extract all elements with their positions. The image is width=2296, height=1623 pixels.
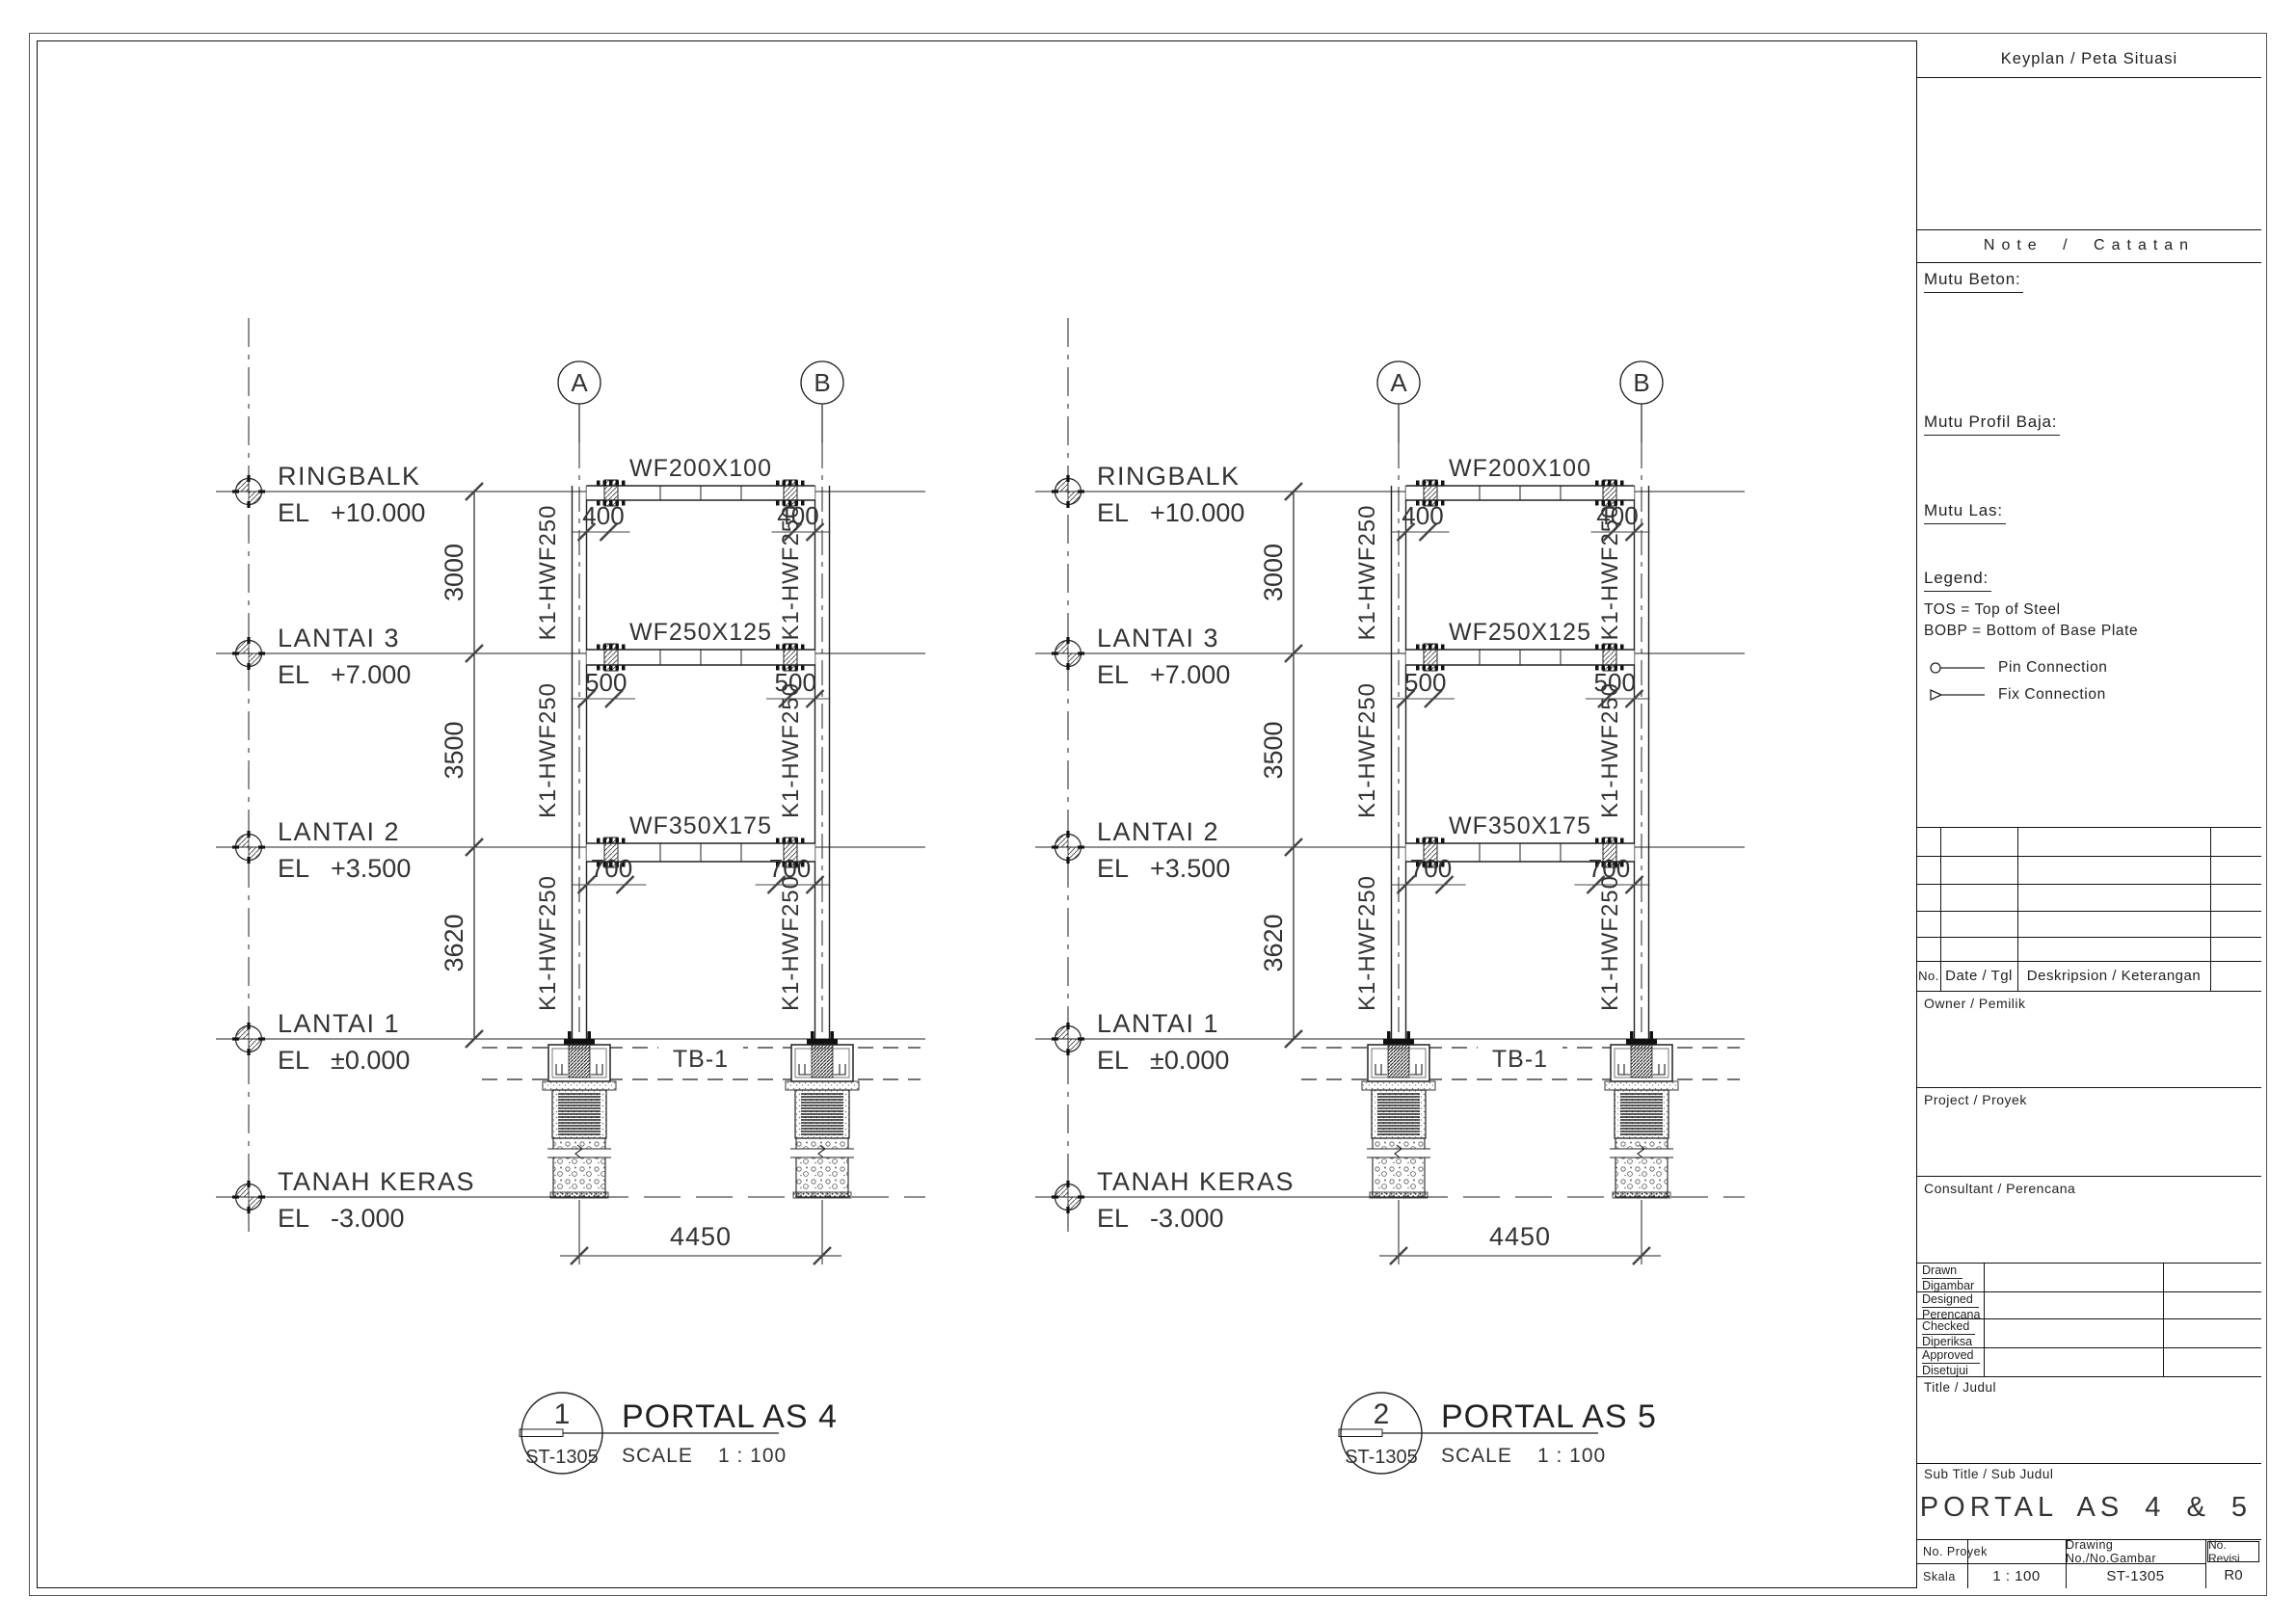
portals-0-column_label: K1-HWF250 [778,682,804,818]
datum-symbol [232,831,265,864]
portals-1-bubble-ref: ST-1305 [1345,1447,1418,1468]
portals-1-beams-0-end_dim: 400 [1402,501,1443,530]
portals-1-column_label: K1-HWF250 [1354,682,1380,818]
owner-section: Owner / Pemilik [1917,991,2261,1088]
legend-fix-label: Fix Connection [1998,686,2106,704]
portals-1-levels-0-name: RINGBALK [1097,462,1241,491]
datum-symbol [232,637,265,670]
portals-1-grid_labels-0: A [1390,368,1407,397]
footer-strip: No. Proyek Skala 1 : 100 Drawing No./No.… [1917,1539,2261,1588]
signoff-checked-id: Diperiksa [1922,1335,1972,1348]
portals-1-tie_beam_label: TB-1 [1492,1046,1548,1073]
consultant-label: Consultant / Perencana [1924,1181,2075,1196]
revision-col-desc: Deskripsion / Keterangan [2017,961,2210,991]
portals-0-levels-4-prefix: EL [278,1204,309,1233]
subtitle-value: PORTAL AS 4 & 5 [1920,1492,2252,1524]
portals-0-story_dims-1: 3500 [440,721,468,779]
portals-0-levels-4-name: TANAH KERAS [278,1167,475,1196]
skala-label: Skala [1923,1570,1956,1583]
mutu-beton-label: Mutu Beton: [1924,270,2023,293]
portals-0-beams-1-label: WF250X125 [629,619,772,646]
foundation [1362,1031,1435,1198]
portals-0-column_label: K1-HWF250 [778,504,804,640]
portals-0-levels-3-name: LANTAI 1 [278,1009,400,1038]
portals-1-levels-4-name: TANAH KERAS [1097,1167,1295,1196]
project-label: Project / Proyek [1924,1092,2027,1107]
portals-0-tie_beam_label: TB-1 [673,1046,729,1073]
portals-0-beams-1-end_dim: 500 [585,668,627,697]
legend-pin-label: Pin Connection [1998,659,2108,677]
portals-0-grid_labels-0: A [571,368,588,397]
portals-1-levels-2-prefix: EL [1097,854,1129,883]
mutu-las-label: Mutu Las: [1924,501,2006,524]
portals-1-levels-3-name: LANTAI 1 [1097,1009,1219,1038]
portals-0-story_dims-2: 3620 [440,914,468,971]
signoff-checked-en: Checked [1922,1319,1975,1335]
keyplan-header: Keyplan / Peta Situasi [1917,40,2261,78]
portals-1-grid_labels-1: B [1633,368,1649,397]
datum-symbol [1052,1023,1084,1055]
subtitle-label: Sub Title / Sub Judul [1924,1467,2053,1481]
keyplan-header-label: Keyplan / Peta Situasi [1917,40,2261,77]
portals-0-column_label: K1-HWF250 [535,504,561,640]
portals-1-levels-1-name: LANTAI 3 [1097,624,1219,652]
portals-1-column_label: K1-HWF250 [1354,875,1380,1011]
portals-0-levels-4-value: -3.000 [331,1204,405,1233]
portals-0-bubble-ref: ST-1305 [525,1447,599,1468]
portals-1-story_dims-0: 3000 [1259,544,1288,601]
portals-1-levels-0-value: +10.000 [1150,498,1244,527]
foundation [543,1031,616,1198]
portals-0-levels-1-name: LANTAI 3 [278,624,400,652]
portals-0-column_label: K1-HWF250 [778,875,804,1011]
portals-1-beams-1-end_dim: 500 [1404,668,1446,697]
title-label: Title / Judul [1924,1380,1996,1395]
portals-0-beams-0-end_dim: 400 [582,501,624,530]
portals-1-bubble-number: 2 [1374,1398,1390,1430]
drawing-no-label: Drawing No./No.Gambar [2066,1539,2205,1563]
drawing-no-value: ST-1305 [2066,1563,2205,1588]
portals-0-column_label: K1-HWF250 [535,875,561,1011]
portals-1-story_dims-1: 3500 [1259,721,1288,779]
portals-1-bubble-scale_label: SCALE [1441,1445,1512,1467]
portals-1-column_label: K1-HWF250 [1597,504,1623,640]
portals-1-span_dim: 4450 [1489,1222,1551,1251]
revision-col-date: Date / Tgl [1940,961,2017,991]
portals-0-levels-1-prefix: EL [278,660,309,689]
title-section: Title / Judul [1917,1376,2261,1464]
revisi-cell: No. Revisi R0 [2205,1539,2261,1588]
portals-1-levels-1-value: +7.000 [1150,660,1230,689]
portals-1-column_label: K1-HWF250 [1597,682,1623,818]
portals-1-column_label: K1-HWF250 [1354,504,1380,640]
revisi-value: R0 [2207,1564,2259,1585]
portals-0-levels-3-value: ±0.000 [331,1046,410,1075]
note-header: Note / Catatan [1917,229,2261,263]
portals-1-beams-1-label: WF250X125 [1449,619,1591,646]
portals-0-levels-1-value: +7.000 [331,660,411,689]
portals-0-grid_labels-1: B [814,368,830,397]
signoff-drawn-id: Digambar [1922,1279,1974,1292]
foundation [786,1031,859,1198]
portals-0-column_label: K1-HWF250 [535,682,561,818]
revision-col-no: No. [1917,961,1940,991]
legend-bobp-line: BOBP = Bottom of Base Plate [1924,623,2138,640]
portals-0-bubble-title: PORTAL AS 4 [622,1398,838,1435]
portals-0-story_dims-0: 3000 [440,544,468,601]
portals-1-levels-3-prefix: EL [1097,1046,1129,1075]
no-proyek-label: No. Proyek [1923,1545,1988,1558]
portals-1-levels-2-name: LANTAI 2 [1097,817,1219,846]
signoff-approved-en: Approved [1922,1348,1980,1364]
signoff-approved-id: Disetujui [1922,1364,1968,1377]
portals-1-column_label: K1-HWF250 [1597,875,1623,1011]
portals-0-levels-0-prefix: EL [278,498,309,527]
portals-1-levels-4-prefix: EL [1097,1204,1129,1233]
portals-0-beams-0-label: WF200X100 [629,455,772,482]
revisi-label: No. Revisi [2207,1541,2259,1562]
portals-0-levels-0-name: RINGBALK [278,462,421,491]
datum-symbol [232,1181,265,1213]
portals-0-levels-3-prefix: EL [278,1046,309,1075]
keyplan-box [1917,77,2261,230]
portals-0-span_dim: 4450 [670,1222,732,1251]
portals-1-levels-3-value: ±0.000 [1150,1046,1229,1075]
consultant-section: Consultant / Perencana [1917,1176,2261,1264]
title-block: Keyplan / Peta Situasi Note / Catatan Mu… [1916,40,2261,1588]
datum-symbol [232,475,265,508]
revision-table: No. Date / Tgl Deskripsion / Keterangan [1917,827,2261,992]
portals-1-levels-0-prefix: EL [1097,498,1129,527]
owner-label: Owner / Pemilik [1924,996,2026,1011]
portals-1-story_dims-2: 3620 [1259,914,1288,971]
portals-1-bubble-title: PORTAL AS 5 [1441,1398,1657,1435]
portals-0-bubble-scale_label: SCALE [622,1445,693,1467]
datum-symbol [1052,831,1084,864]
fix-connection-icon [1929,688,1989,702]
foundation [1605,1031,1678,1198]
portals-0-bubble-scale_value: 1 : 100 [718,1445,787,1467]
portal-frame-1: ABWF200X100400400WF250X125500500WF350X17… [216,318,925,1474]
skala-value: 1 : 100 [1967,1563,2066,1588]
portals-0-beams-2-label: WF350X175 [629,812,772,839]
portals-1-levels-2-value: +3.500 [1150,854,1230,883]
legend-tos-line: TOS = Top of Steel [1924,601,2061,619]
portals-1-bubble-scale_value: 1 : 100 [1537,1445,1606,1467]
signoff-designed-en: Designed [1922,1292,1979,1308]
signoff-table: Drawn Digambar Designed Perencana Checke… [1917,1263,2261,1377]
portals-0-levels-2-name: LANTAI 2 [278,817,400,846]
datum-symbol [1052,1181,1084,1213]
portal-frame-2: ABWF200X100400400WF250X125500500WF350X17… [1035,318,1745,1474]
portals-0-levels-2-prefix: EL [278,854,309,883]
portals-1-beams-2-label: WF350X175 [1449,812,1591,839]
note-header-label: Note / Catatan [1917,229,2261,262]
datum-symbol [1052,475,1084,508]
datum-symbol [1052,637,1084,670]
portals-1-beams-2-end_dim: 700 [1410,854,1452,883]
project-section: Project / Proyek [1917,1087,2261,1177]
legend-pin-row: Pin Connection [1929,659,2108,677]
legend-header-label: Legend: [1924,569,1991,592]
pin-connection-icon [1929,661,1989,675]
notes-section: Mutu Beton: Mutu Profil Baja: Mutu Las: … [1917,262,2261,828]
portals-1-levels-4-value: -3.000 [1150,1204,1224,1233]
signoff-drawn-en: Drawn [1922,1264,1962,1279]
portals-1-levels-1-prefix: EL [1097,660,1129,689]
subtitle-section: Sub Title / Sub Judul PORTAL AS 4 & 5 [1917,1463,2261,1540]
mutu-profil-baja-label: Mutu Profil Baja: [1924,412,2060,436]
portals-0-beams-2-end_dim: 700 [591,854,632,883]
portals-0-levels-2-value: +3.500 [331,854,411,883]
portals-0-bubble-number: 1 [554,1398,571,1430]
legend-fix-row: Fix Connection [1929,686,2106,704]
portals-0-levels-0-value: +10.000 [331,498,425,527]
portals-1-beams-0-label: WF200X100 [1449,455,1591,482]
datum-symbol [232,1023,265,1055]
